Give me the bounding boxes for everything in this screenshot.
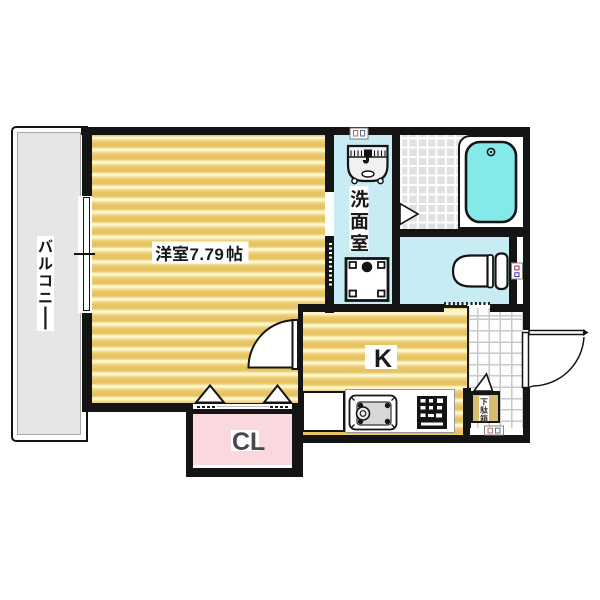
svg-text:CL: CL: [232, 428, 265, 456]
svg-text:K: K: [374, 345, 392, 373]
svg-text:7.79: 7.79: [190, 245, 225, 264]
